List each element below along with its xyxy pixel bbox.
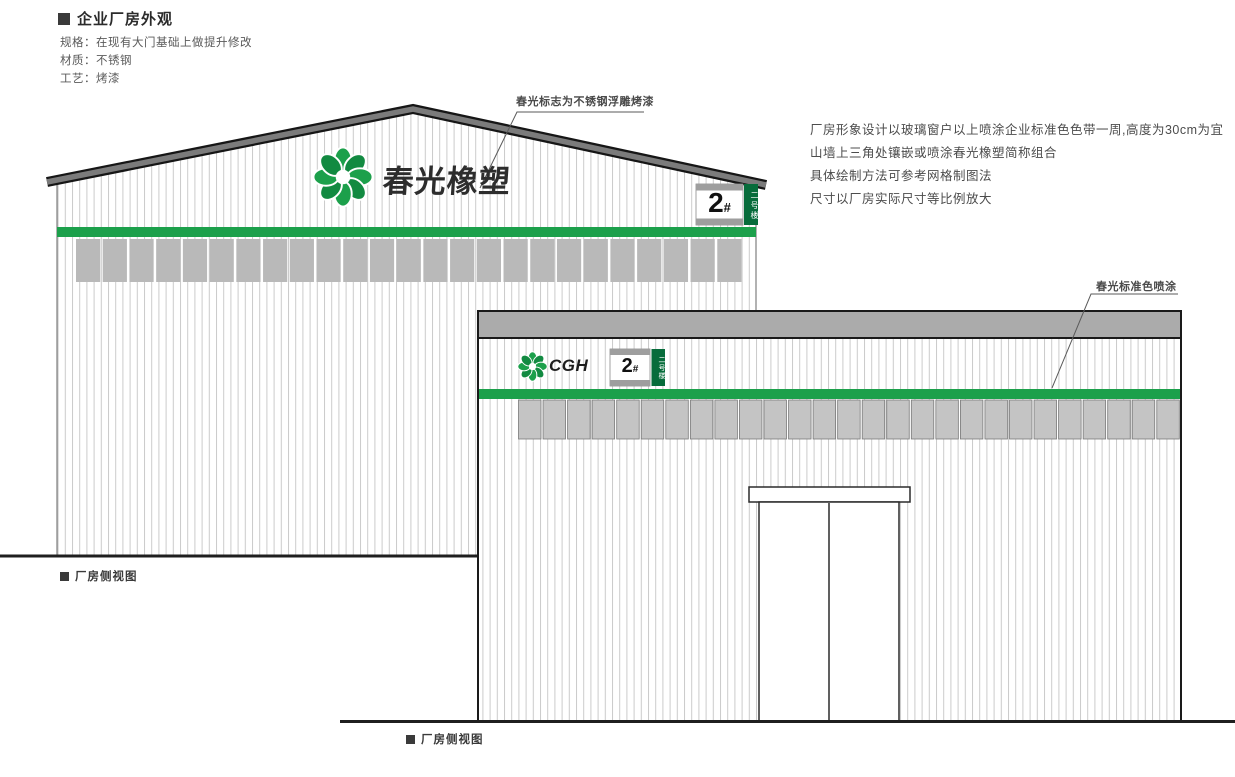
door-header (749, 487, 910, 502)
panel (343, 239, 367, 282)
right-sign-number-digit: 2 (622, 355, 633, 377)
panel (1059, 400, 1082, 439)
panel (568, 400, 591, 439)
panel (584, 239, 608, 282)
design-notes: 厂房形象设计以玻璃窗户以上喷涂企业标准色色带一周,高度为30cm为宜 山墙上三角… (810, 119, 1235, 211)
left-sign-number: 2# (696, 187, 743, 219)
panel (397, 239, 421, 282)
panel (370, 239, 394, 282)
panel (557, 239, 581, 282)
panel (519, 400, 542, 439)
panel (610, 239, 634, 282)
panel (664, 239, 688, 282)
panel (717, 239, 741, 282)
left-sign-hash: # (724, 200, 731, 215)
panel (129, 239, 153, 282)
paint-color-annotation: 春光标准色喷涂 (1096, 278, 1177, 294)
panel (764, 400, 787, 439)
caption-marker-icon (60, 572, 69, 581)
panel (637, 239, 661, 282)
chunguang-flower-logo-icon (313, 147, 372, 206)
factory-design-sheet: 企业厂房外观 规格：在现有大门基础上做提升修改 材质：不锈钢 工艺：烤漆 厂房形… (0, 0, 1235, 777)
page-title-row: 企业厂房外观 (58, 8, 173, 29)
panel (316, 239, 340, 282)
right-building-logo-text: CGH (549, 356, 588, 376)
panel (617, 400, 640, 439)
panel (592, 400, 615, 439)
left-green-stripe (57, 227, 756, 237)
section-marker-icon (58, 13, 70, 25)
panel (236, 239, 260, 282)
left-building-caption-row: 厂房侧视图 (60, 568, 138, 584)
spec-line-3: 工艺：烤漆 (60, 70, 120, 86)
panel (450, 239, 474, 282)
panel (530, 239, 554, 282)
panel (423, 239, 447, 282)
panel (210, 239, 234, 282)
note-line-3: 具体绘制方法可参考网格制图法 (810, 165, 1235, 188)
page-title: 企业厂房外观 (77, 8, 173, 29)
spec-line-2: 材质：不锈钢 (60, 52, 132, 68)
panel (715, 400, 738, 439)
panel (789, 400, 812, 439)
panel (691, 239, 715, 282)
panel (1083, 400, 1106, 439)
panel (1010, 400, 1033, 439)
logo-material-annotation: 春光标志为不锈钢浮雕烤漆 (516, 93, 654, 109)
right-sign-number: 2# (610, 355, 650, 378)
panel (936, 400, 959, 439)
panel (690, 400, 713, 439)
panel (290, 239, 314, 282)
caption-marker-icon (406, 735, 415, 744)
left-building-logo-text: 春光橡塑 (381, 156, 512, 201)
spec-line-1: 规格：在现有大门基础上做提升修改 (60, 34, 252, 50)
panel (183, 239, 207, 282)
right-sign-hash: # (633, 364, 639, 375)
panel (813, 400, 836, 439)
right-sign-vertical-label: 二号楼 (652, 352, 665, 383)
note-line-1: 厂房形象设计以玻璃窗户以上喷涂企业标准色色带一周,高度为30cm为宜 (810, 119, 1235, 142)
panel (862, 400, 885, 439)
note-line-4: 尺寸以厂房实际尺寸等比例放大 (810, 188, 1235, 211)
left-window-panels (76, 239, 741, 282)
note-line-2: 山墙上三角处镶嵌或喷涂春光橡塑简称组合 (810, 142, 1235, 165)
left-sign-number-digit: 2 (708, 187, 724, 218)
panel (1157, 400, 1180, 439)
panel (477, 239, 501, 282)
panel (76, 239, 100, 282)
cgh-flower-logo-icon (518, 352, 548, 382)
elevation-drawing (0, 0, 1235, 777)
panel (887, 400, 910, 439)
panel (543, 400, 566, 439)
panel (1108, 400, 1131, 439)
panel (1034, 400, 1057, 439)
right-building-caption: 厂房侧视图 (421, 731, 484, 747)
panel (960, 400, 983, 439)
panel (156, 239, 180, 282)
panel (263, 239, 287, 282)
right-roof-band (478, 311, 1181, 338)
right-green-stripe (479, 389, 1180, 399)
panel (838, 400, 861, 439)
panel (911, 400, 934, 439)
panel (985, 400, 1008, 439)
left-sign-vertical-label: 二号楼 (745, 189, 758, 222)
right-building-caption-row: 厂房侧视图 (406, 731, 484, 747)
left-building-caption: 厂房侧视图 (75, 568, 138, 584)
panel (1132, 400, 1155, 439)
panel (103, 239, 127, 282)
panel (641, 400, 664, 439)
panel (504, 239, 528, 282)
right-window-panels (519, 400, 1180, 439)
panel (739, 400, 762, 439)
panel (666, 400, 689, 439)
